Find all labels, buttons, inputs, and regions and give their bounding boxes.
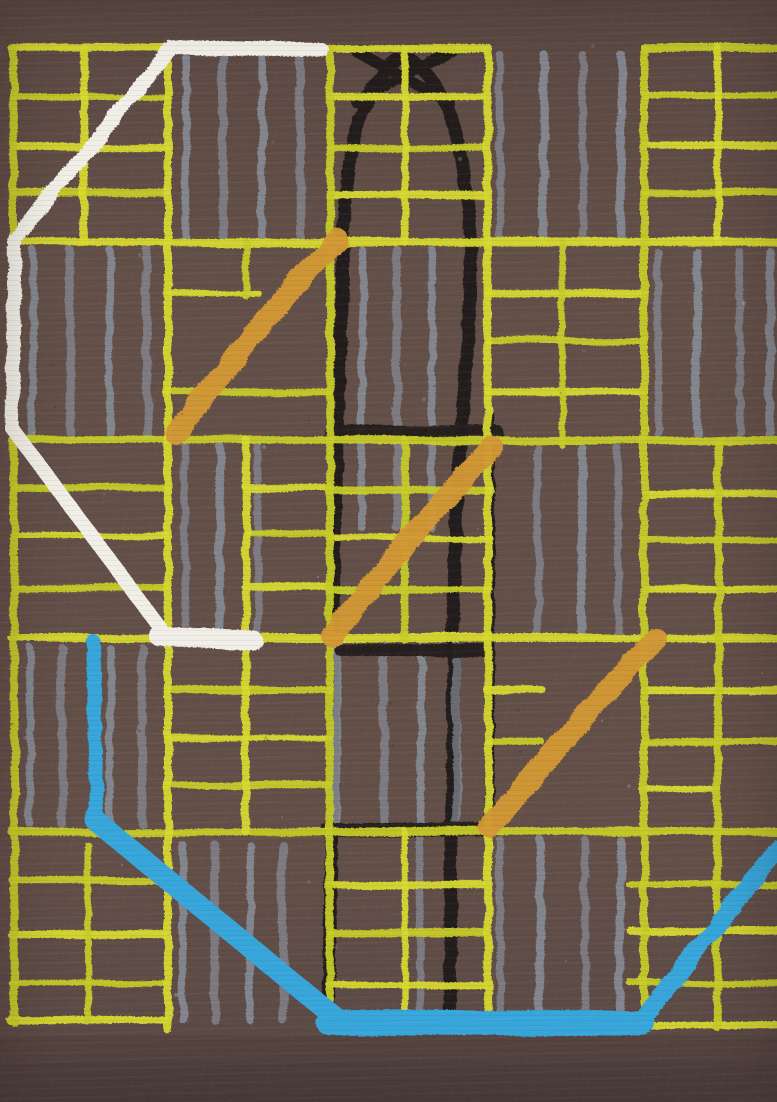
painting-svg xyxy=(0,0,777,1102)
artwork-frame xyxy=(0,0,777,1102)
grain-layer xyxy=(0,0,777,1102)
